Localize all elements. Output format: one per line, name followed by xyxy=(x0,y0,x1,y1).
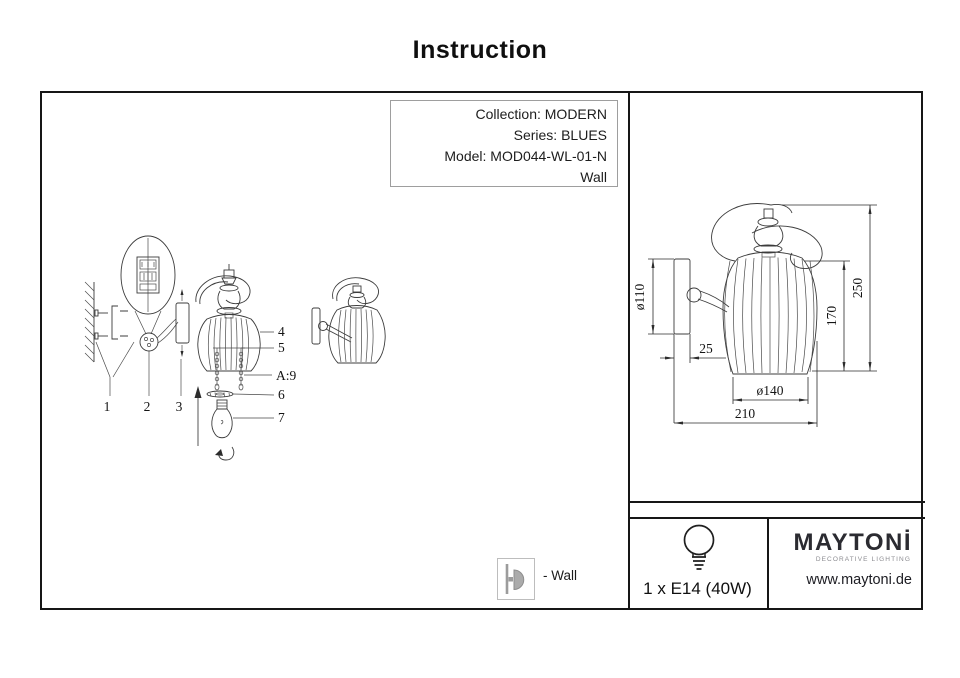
part-label-2: 2 xyxy=(144,399,151,414)
rotate-arrow xyxy=(215,447,234,460)
dim-shade-diameter: ø140 xyxy=(733,377,808,404)
wall-mount-icon xyxy=(497,558,535,600)
bulb-part xyxy=(212,400,232,438)
dim-label-total-width: 210 xyxy=(735,406,756,421)
finial xyxy=(754,209,783,257)
wall-plate xyxy=(674,259,729,334)
info-series: Series: BLUES xyxy=(391,125,607,146)
instruction-sheet: Instruction Collection: MODERN Series: B… xyxy=(0,0,960,678)
wall-hatch xyxy=(85,282,94,362)
finial xyxy=(217,285,241,318)
wire-bundle xyxy=(140,319,178,396)
brand-logo: MAYTONİ xyxy=(767,530,925,556)
part-label-1: 1 xyxy=(104,399,111,414)
wall-mount-label: - Wall xyxy=(543,568,577,583)
dim-label-total-height: 250 xyxy=(850,278,865,299)
ribbed-shade xyxy=(723,252,817,374)
dim-plate-depth: 25 xyxy=(660,334,726,423)
dimension-drawing-svg: ø110 25 ø140 210 xyxy=(632,191,925,471)
wiring-balloon xyxy=(121,236,175,334)
part-label-6: 6 xyxy=(278,387,285,402)
footer-top-line xyxy=(628,501,925,503)
part-label-7: 7 xyxy=(278,410,285,425)
assembly-diagram-svg: 1 2 xyxy=(60,226,470,471)
ring-part xyxy=(207,391,233,397)
info-collection: Collection: MODERN xyxy=(391,104,607,125)
lamp-spec-label: 1 x E14 (40W) xyxy=(628,579,767,599)
part-label-3: 3 xyxy=(176,399,183,414)
brand-block: MAYTONİ DECORATIVE LIGHTING www.maytoni.… xyxy=(767,517,925,608)
assembled-view xyxy=(312,278,385,363)
part-label-a9: A:9 xyxy=(276,368,297,383)
dim-label-plate-depth: 25 xyxy=(699,341,713,356)
content-frame: Collection: MODERN Series: BLUES Model: … xyxy=(40,91,923,610)
ribbed-shade xyxy=(198,315,260,372)
wall-plate-exploded xyxy=(176,289,189,396)
dim-label-shade-height: 170 xyxy=(824,306,839,327)
part-label-4: 4 xyxy=(278,324,285,339)
brand-website: www.maytoni.de xyxy=(767,572,925,588)
dim-shade-height: 170 xyxy=(804,261,877,371)
part-leaders xyxy=(233,332,274,418)
main-vertical-divider xyxy=(628,93,630,608)
info-model: Model: MOD044-WL-01-N xyxy=(391,146,607,167)
bulb-icon xyxy=(680,523,718,573)
up-arrow xyxy=(195,386,202,446)
scroll xyxy=(712,204,823,269)
screws xyxy=(95,310,108,339)
dim-plate-diameter: ø110 xyxy=(632,259,674,334)
mount-bracket xyxy=(112,306,128,339)
dim-label-shade-diameter: ø140 xyxy=(757,383,784,398)
lamp-top-hardware xyxy=(222,264,236,284)
bead-strands xyxy=(215,348,243,390)
part-label-5: 5 xyxy=(278,340,285,355)
product-info-box: Collection: MODERN Series: BLUES Model: … xyxy=(390,100,618,187)
info-mount-type: Wall xyxy=(391,167,607,188)
page-title: Instruction xyxy=(0,36,960,65)
dim-label-plate-diameter: ø110 xyxy=(632,284,647,311)
part1-leader xyxy=(96,342,134,396)
brand-tagline: DECORATIVE LIGHTING xyxy=(767,556,925,563)
